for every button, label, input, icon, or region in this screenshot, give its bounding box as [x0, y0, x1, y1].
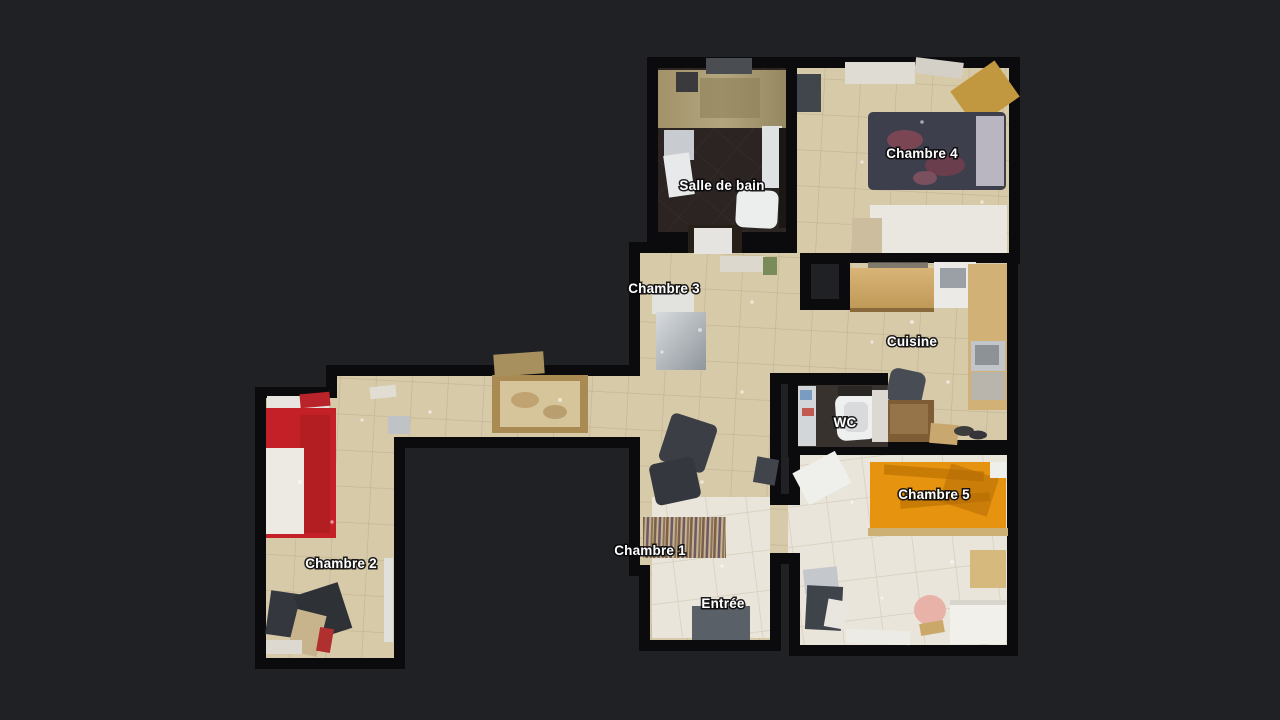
label-chambre-2: Chambre 2 — [305, 556, 377, 571]
vent-object — [706, 58, 752, 74]
white-shelf-top — [720, 256, 765, 272]
metal-item — [388, 416, 410, 434]
label-chambre-3: Chambre 3 — [628, 281, 700, 296]
dark-cabinet — [797, 74, 821, 112]
label-salle-de-bain: Salle de bain — [679, 178, 764, 193]
floorplan-viewport: Salle de bain Chambre 4 Chambre 3 Cuisin… — [0, 0, 1280, 720]
small-dark-item — [753, 456, 779, 485]
tan-stool — [929, 423, 959, 445]
connector-cabinet — [694, 228, 732, 254]
white-shelf — [845, 62, 915, 84]
entree-doormat — [692, 606, 750, 640]
label-cuisine: Cuisine — [887, 334, 937, 349]
label-chambre-5: Chambre 5 — [898, 487, 970, 502]
bottom-white-strip — [846, 629, 910, 645]
label-wc: WC — [834, 415, 857, 430]
desk-side — [852, 218, 882, 253]
white-desk-br — [950, 600, 1006, 644]
pillow-red — [299, 392, 330, 409]
floor-passage[interactable] — [788, 505, 808, 553]
floorplan-canvas[interactable]: Salle de bain Chambre 4 Chambre 3 Cuisin… — [0, 0, 1280, 720]
door-panel — [384, 558, 393, 642]
white-bits — [266, 640, 302, 654]
wc-cistern — [838, 386, 872, 396]
bed-frame — [868, 528, 1008, 536]
label-chambre-1: Chambre 1 — [614, 543, 686, 558]
mattress-white — [266, 448, 304, 534]
label-chambre-4: Chambre 4 — [886, 146, 958, 161]
plant — [763, 257, 777, 275]
dark-frame — [779, 128, 786, 228]
label-entree: Entrée — [701, 596, 745, 611]
tan-shelf — [970, 550, 1006, 588]
wc-right-panel — [872, 390, 888, 442]
white-desk — [870, 205, 1007, 253]
corridor-rug-center — [500, 381, 580, 427]
gray-appliance — [971, 372, 1005, 400]
wooden-table — [850, 268, 934, 312]
faucet-dark — [676, 72, 698, 92]
toilet — [735, 189, 779, 229]
bed-pillow — [976, 116, 1004, 186]
bed-white-corner — [990, 462, 1006, 478]
mirror-wardrobe — [656, 312, 706, 370]
shelf-object — [493, 351, 544, 376]
